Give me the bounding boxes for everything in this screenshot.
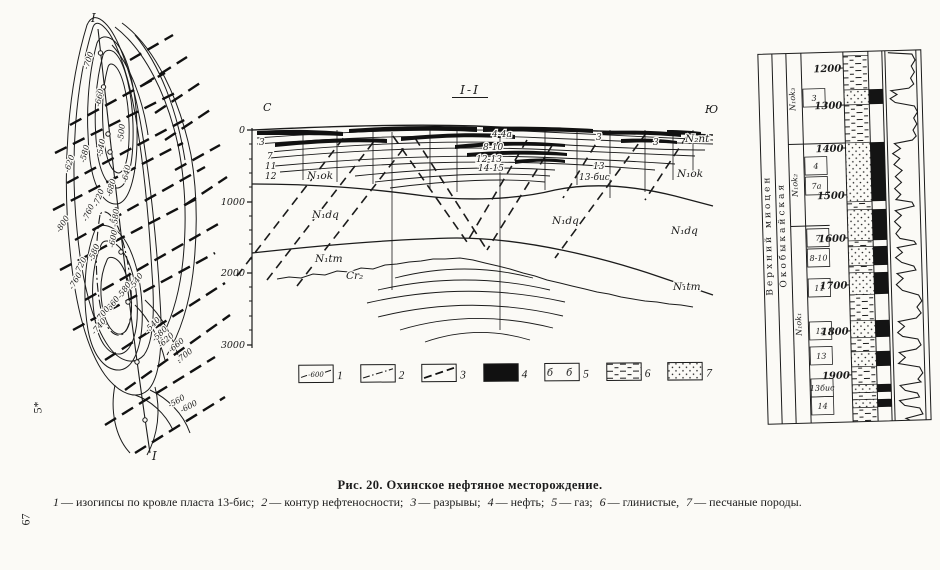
- oil-swatch: [483, 362, 519, 381]
- formation-label: N₁tm: [672, 281, 701, 293]
- lithology-interval-clay: [851, 337, 876, 352]
- layer-number: 7а: [811, 182, 821, 191]
- lithology-interval-clay: [853, 407, 878, 422]
- layer-number-label: 3: [596, 133, 602, 143]
- formation-label: N₁dq: [311, 209, 339, 221]
- contour-lines: [66, 18, 196, 455]
- layer-number-label: 12: [265, 172, 277, 182]
- depth-axis: [247, 128, 252, 348]
- caption-item-text: — нефть;: [494, 495, 545, 509]
- layer-number-label: 3: [259, 138, 265, 148]
- contour-label: -640: [120, 164, 133, 183]
- oil-saturated-interval: [876, 351, 890, 366]
- legend-item-number: 7: [706, 369, 712, 381]
- oil-saturated-interval: [878, 399, 892, 407]
- column-depth-label: 1200: [813, 64, 841, 76]
- book-page: { "page": { "caption_title": "Рис. 20. О…: [0, 0, 940, 570]
- lithology-interval-sand: [852, 384, 877, 393]
- svg-text:б б: б б: [547, 367, 577, 378]
- lithology-interval-clay: [843, 55, 869, 90]
- cross-section: I-IСЮ01000200030003711124-4а8-1012-1314-…: [215, 80, 725, 360]
- layer-number-label: 14-15: [478, 164, 504, 174]
- strat-column: 347а78-1011121313бис14120013001400150016…: [755, 48, 935, 428]
- formation-label: N₁dq: [551, 215, 579, 227]
- layer-number-label: 4-4а: [491, 130, 512, 140]
- caption-item-text: — контур нефтеносности;: [267, 495, 403, 509]
- stage-label: Верхний миоцен: [762, 174, 775, 295]
- legend-item-number: 2: [399, 371, 405, 383]
- north-label: С: [263, 101, 272, 114]
- lithology-interval-sand: [849, 272, 875, 295]
- caption-item-number: 6: [593, 495, 606, 509]
- contour-label: -660: [93, 88, 106, 107]
- caption-item-number: 3: [403, 495, 416, 509]
- figure-caption-title: Рис. 20. Охинское нефтяное месторождение…: [0, 478, 940, 493]
- tm-base-boundary: [277, 258, 693, 307]
- ok-base-boundary: [252, 184, 713, 206]
- contour-label: -580: [78, 144, 91, 164]
- section-trace-label-bottom: I: [151, 449, 157, 463]
- depth-tick-label: 2000: [220, 268, 245, 279]
- legend-item-gas: б б5: [544, 362, 589, 381]
- layer-number-label: 11: [265, 162, 276, 172]
- cretaceous-fold-arcs: [367, 269, 565, 342]
- oil-saturated-interval: [870, 142, 886, 201]
- contour-label: -540: [95, 138, 107, 157]
- legend: -6001234б б567: [298, 356, 712, 389]
- section-title: I-I: [459, 82, 480, 97]
- oil-saturated-interval: [869, 89, 883, 104]
- legend-item-number: 3: [460, 370, 466, 382]
- contour-label: -500: [116, 123, 127, 142]
- caption-item-text: — газ;: [557, 495, 592, 509]
- legend-item-number: 1: [337, 371, 343, 383]
- layer-number: 13бис: [810, 383, 835, 393]
- lithology-interval-clay: [844, 104, 870, 143]
- contour-label: -580: [87, 243, 102, 263]
- oil-contour-swatch: [359, 363, 395, 382]
- contour-label: -580: [110, 208, 121, 227]
- south-label: Ю: [704, 103, 718, 116]
- formation-label: N₁dq: [670, 225, 698, 237]
- caption-item-text: — разрывы;: [416, 495, 480, 509]
- section-trace-label-top: I: [90, 11, 96, 25]
- lithology-interval-sand: [851, 351, 876, 367]
- clay-swatch: [606, 362, 642, 381]
- formation-label: Cr₂: [346, 270, 363, 282]
- layer-number-label: 13-бис: [579, 172, 610, 183]
- column-depth-label: 1600: [818, 233, 846, 245]
- caption-item-text: — глинистые,: [606, 495, 680, 509]
- legend-item-number: 5: [583, 369, 589, 381]
- layer-number: 8-10: [809, 253, 827, 262]
- lithology-interval-sand: [848, 246, 874, 266]
- lithology-interval-sand: [847, 209, 873, 241]
- formation-label: N₁tm: [314, 253, 343, 265]
- layer-number-label: 7: [267, 152, 273, 162]
- legend-item-isohypse: -6001: [298, 364, 343, 383]
- sand-swatch: [667, 361, 703, 380]
- layer-number: 13: [816, 352, 826, 361]
- caption-item-number: 1: [46, 495, 59, 509]
- contour-label: -700: [81, 51, 95, 71]
- legend-item-number: 6: [645, 369, 651, 381]
- dq-base-boundary: [252, 238, 713, 295]
- depth-tick-label: 3000: [221, 340, 245, 351]
- contour-label: -760: [81, 203, 97, 223]
- layer-number: 4: [812, 162, 818, 171]
- lithology-interval-clay: [852, 392, 877, 400]
- column-content: 347а78-1011121313бис14120013001400150016…: [759, 55, 892, 424]
- layer-number-label: 8-10: [483, 143, 503, 153]
- lithology-interval-clay: [849, 265, 874, 273]
- structure-map: -700-660-540-580-620-500-640-680-720-760…: [15, 5, 235, 463]
- svg-text:-600: -600: [308, 370, 324, 378]
- column-depth-label: 1700: [819, 280, 847, 292]
- caption-item-text: — изогипсы по кровле пласта 13-бис;: [59, 495, 254, 509]
- layer-number: 14: [817, 402, 827, 411]
- caption-item-number: 5: [544, 495, 557, 509]
- oil-saturated-interval: [874, 272, 889, 294]
- column-depth-label: 1500: [817, 190, 845, 202]
- column-depth-label: 1400: [816, 144, 844, 156]
- lithology-interval-sand: [850, 320, 875, 338]
- caption-item-text: — песчаные породы.: [692, 495, 802, 509]
- oil-saturated-interval: [873, 246, 888, 265]
- fault-swatch: [421, 363, 457, 382]
- lithology-interval-clay: [850, 294, 876, 321]
- column-depth-label: 1800: [821, 326, 849, 338]
- lithology-interval-clay: [852, 366, 877, 385]
- column-depth-label: 1300: [814, 101, 842, 113]
- layer-number-label: 13: [593, 162, 605, 172]
- section-geology: [237, 125, 713, 342]
- depth-tick-label: 1000: [221, 197, 245, 208]
- legend-item-number: 4: [522, 370, 528, 382]
- legend-item-oil: 4: [483, 362, 528, 381]
- subsuite-index-label: N₁ok₂: [790, 174, 800, 198]
- legend-item-clay: 6: [606, 361, 651, 380]
- caption-item-number: 7: [679, 495, 692, 509]
- figure-caption-body: 1— изогипсы по кровле пласта 13-бис;2— к…: [46, 495, 928, 510]
- formation-label: N₁ok: [676, 168, 703, 180]
- oil-saturated-interval: [877, 384, 891, 392]
- gas-swatch: б б: [544, 362, 580, 381]
- legend-item-fault: 3: [421, 363, 466, 382]
- formation-label: N₂nt: [684, 133, 710, 145]
- caption-item-number: 4: [481, 495, 494, 509]
- legend-item-sand: 7: [667, 361, 712, 380]
- subsuite-index-label: N₁ok₁: [794, 313, 804, 337]
- lithology-interval-sand: [845, 142, 872, 202]
- lithology-interval-sand: [853, 399, 878, 408]
- legend-item-oil-contour: 2: [359, 363, 404, 382]
- map-labels: -700-660-540-580-620-500-640-680-720-760…: [54, 11, 199, 463]
- oil-saturated-interval: [875, 320, 889, 337]
- formation-label: N₁ok: [306, 170, 333, 182]
- subsuite-index-label: N₁ok₃: [788, 88, 798, 112]
- depth-tick-label: 0: [239, 125, 245, 136]
- page-number: 67: [19, 514, 34, 526]
- isohypse-swatch: -600: [298, 364, 334, 383]
- lithology-interval-clay: [848, 240, 873, 247]
- lithology-interval-sand: [844, 89, 869, 105]
- oil-saturated-interval: [872, 209, 887, 240]
- lithology-interval-clay: [847, 201, 872, 210]
- section-labels: I-IСЮ01000200030003711124-4а8-1012-1314-…: [220, 82, 718, 351]
- column-depth-label: 1900: [822, 370, 850, 382]
- layer-number-label: 3: [653, 138, 659, 148]
- caption-item-number: 2: [254, 495, 267, 509]
